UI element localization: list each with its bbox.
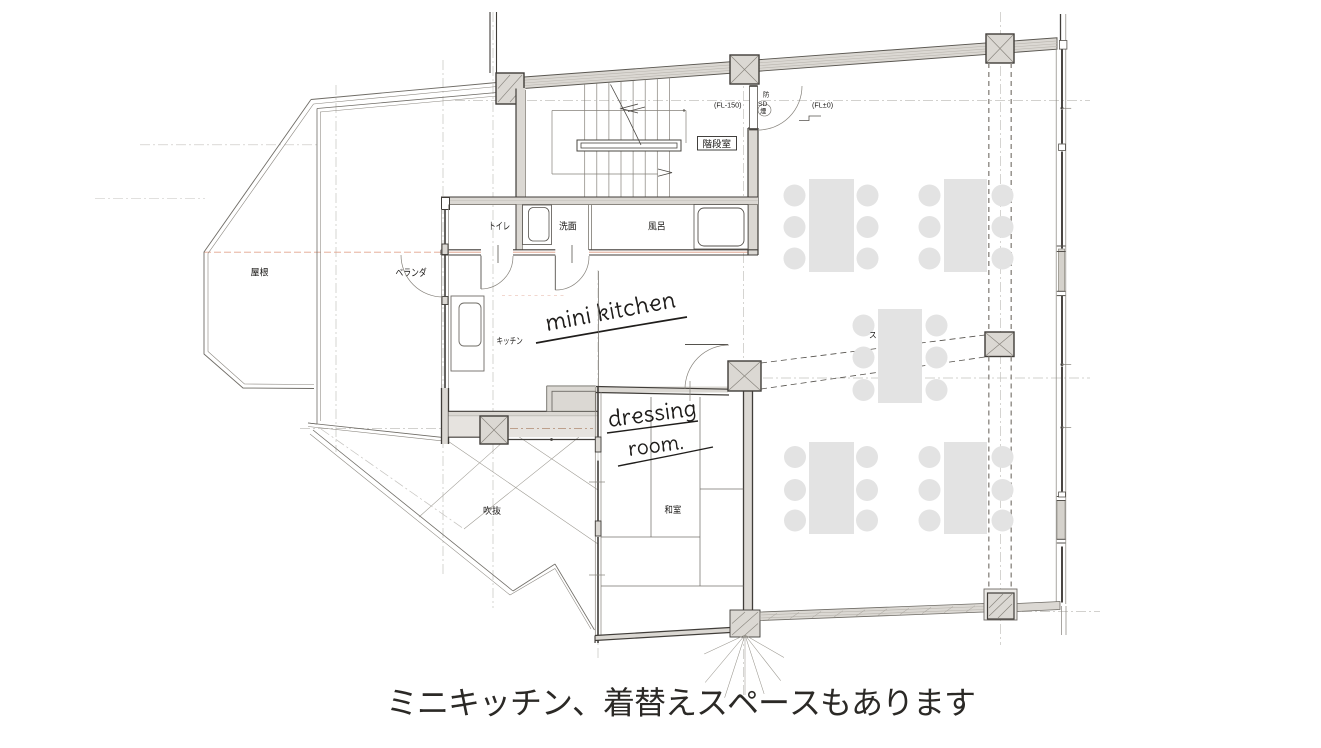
svg-text:(FL±0): (FL±0) [812,101,833,110]
svg-text:(FL-150): (FL-150) [714,101,742,110]
